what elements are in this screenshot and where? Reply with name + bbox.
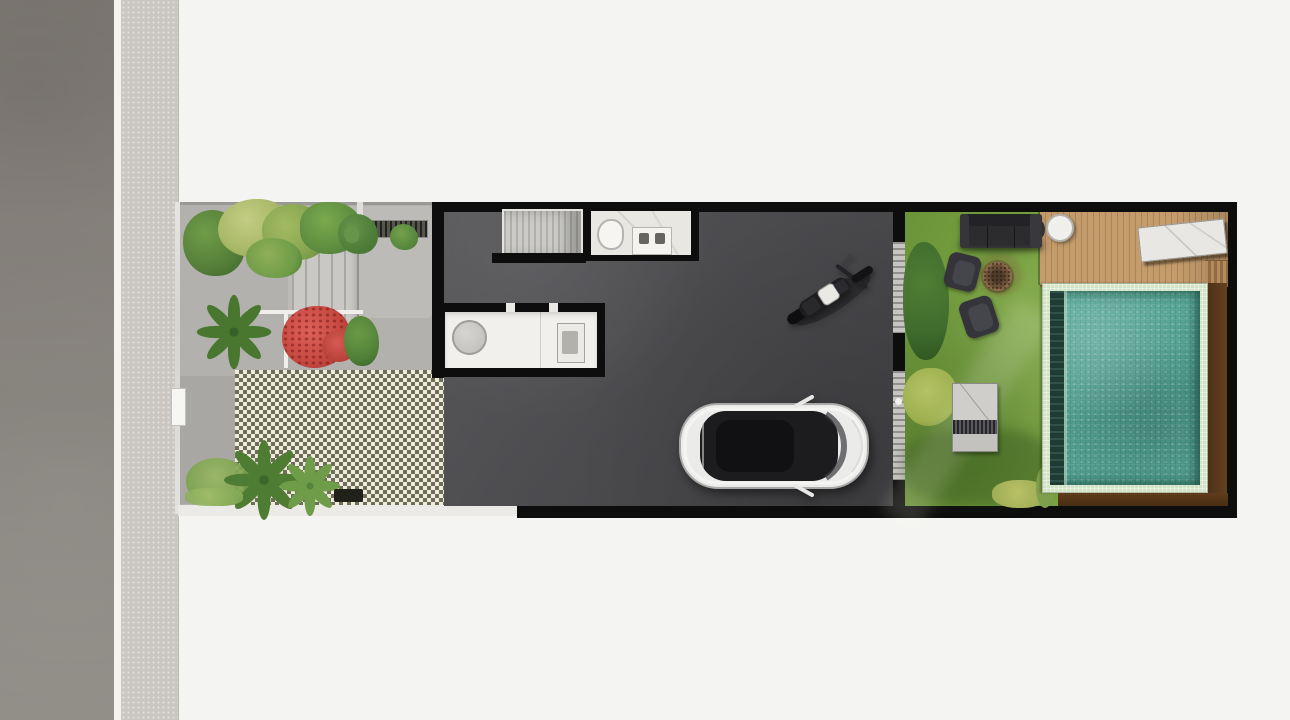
sliding-glass-door (893, 371, 905, 480)
red-flowering-shrub (322, 330, 356, 362)
garden-bench (952, 383, 998, 452)
garage-threshold (517, 374, 603, 506)
bathroom-floor (591, 211, 691, 255)
curb-line (114, 0, 121, 720)
sofa-armrest (1030, 214, 1042, 248)
wall-left (432, 202, 444, 378)
paving-dark-patch (178, 376, 237, 504)
front-garden-paving (178, 202, 432, 516)
wall-bottom (517, 506, 1237, 518)
timber-border-right (1208, 283, 1227, 506)
pool-bench-ledge (1050, 291, 1064, 485)
side-walkway (178, 505, 518, 516)
round-table (1046, 214, 1074, 242)
wall-top (432, 202, 1237, 212)
door-jamb (506, 303, 515, 312)
kitchen-sink-basin (562, 331, 578, 354)
deck-plant-pot (1035, 221, 1045, 238)
planter-edge-vertical (284, 312, 288, 368)
car-top-view (676, 394, 874, 498)
garden-bush (903, 368, 957, 426)
stair-wall (492, 253, 586, 263)
dirt-patch (976, 254, 1022, 296)
counter-seam (540, 312, 541, 368)
sofa-cushion-seam (1014, 226, 1015, 248)
palm-plant (196, 294, 272, 370)
front-fence (175, 202, 180, 514)
street-group (0, 0, 1290, 720)
armchair (957, 294, 1001, 341)
road (0, 0, 114, 720)
entry-steps (292, 246, 359, 325)
sidewalk (121, 0, 179, 720)
shrub (186, 458, 252, 506)
lawn-shade (903, 428, 1053, 506)
shrub (390, 224, 418, 250)
grass-block-driveway (235, 370, 517, 506)
bench-top (953, 384, 997, 420)
deck-steps (1205, 260, 1228, 286)
fire-pit (983, 262, 1012, 291)
front-gate (171, 388, 186, 426)
palm-plant (224, 440, 304, 520)
stone-lounger (1137, 219, 1227, 263)
timber-border-bottom (1058, 493, 1228, 506)
toilet (597, 219, 624, 250)
sofa-armrest (960, 214, 969, 248)
garage-hall-floor (444, 212, 893, 506)
drainage-grate (364, 220, 428, 238)
wall-right (1227, 202, 1237, 518)
sofa-back (960, 214, 1042, 226)
kitchen-walls (437, 303, 605, 377)
site-plan-render (0, 0, 1290, 720)
front-garden-group (0, 0, 1290, 720)
pool-ledge-edge (1064, 291, 1067, 485)
front-boundary-line (178, 202, 432, 205)
paving-light-patch (288, 206, 432, 318)
shrub (344, 226, 359, 243)
planter-box (334, 489, 363, 502)
timber-deck (1040, 212, 1228, 287)
basin (639, 233, 649, 244)
red-flowering-shrub (282, 306, 350, 368)
garage-door-jamb-top (593, 374, 602, 380)
grass-tuft (185, 488, 243, 506)
tree-canopy (183, 210, 245, 276)
backyard-group (0, 0, 1290, 720)
armchair (942, 251, 983, 294)
tree-canopy (246, 238, 302, 278)
kitchen-sink (557, 323, 585, 363)
tree-canopy (300, 202, 362, 254)
motorcycle-top-view (776, 246, 888, 342)
staircase (502, 209, 583, 259)
shrub (344, 316, 379, 366)
sofa-shadow (958, 238, 1046, 253)
outdoor-sofa (960, 214, 1042, 248)
garden-bush (1036, 466, 1054, 508)
house-group (0, 0, 1290, 720)
door-mullion (893, 333, 905, 371)
tree-canopy (262, 204, 328, 260)
kitchen-counter (445, 312, 597, 368)
vehicles-group (0, 0, 1290, 720)
lawn (905, 212, 1227, 506)
pool-water (1050, 291, 1200, 485)
lawn-light-streak (880, 299, 1051, 532)
garage-door-jamb-bottom (593, 499, 602, 505)
door-handle (895, 398, 902, 405)
vanity (632, 227, 672, 255)
door-jamb (549, 303, 558, 312)
bathroom-walls (583, 204, 699, 261)
tree-canopy (218, 199, 290, 257)
basin (655, 233, 665, 244)
tree-canopy (338, 214, 378, 254)
garden-bush (992, 480, 1048, 508)
planter-edge-horizontal (247, 310, 363, 314)
round-kitchen-table (452, 320, 487, 355)
planter-wall-edge (357, 202, 363, 254)
pool-coping (1042, 283, 1208, 493)
wall-segment (893, 480, 905, 518)
sofa-cushion-seam (987, 226, 988, 248)
palm-plant (280, 456, 340, 516)
bench-cushion-stripe (953, 420, 997, 434)
wall-segment (893, 202, 905, 242)
deck-shadow (1038, 212, 1042, 285)
bench-bottom (953, 434, 997, 451)
garden-bush (903, 242, 949, 360)
sliding-glass-door (893, 242, 905, 333)
